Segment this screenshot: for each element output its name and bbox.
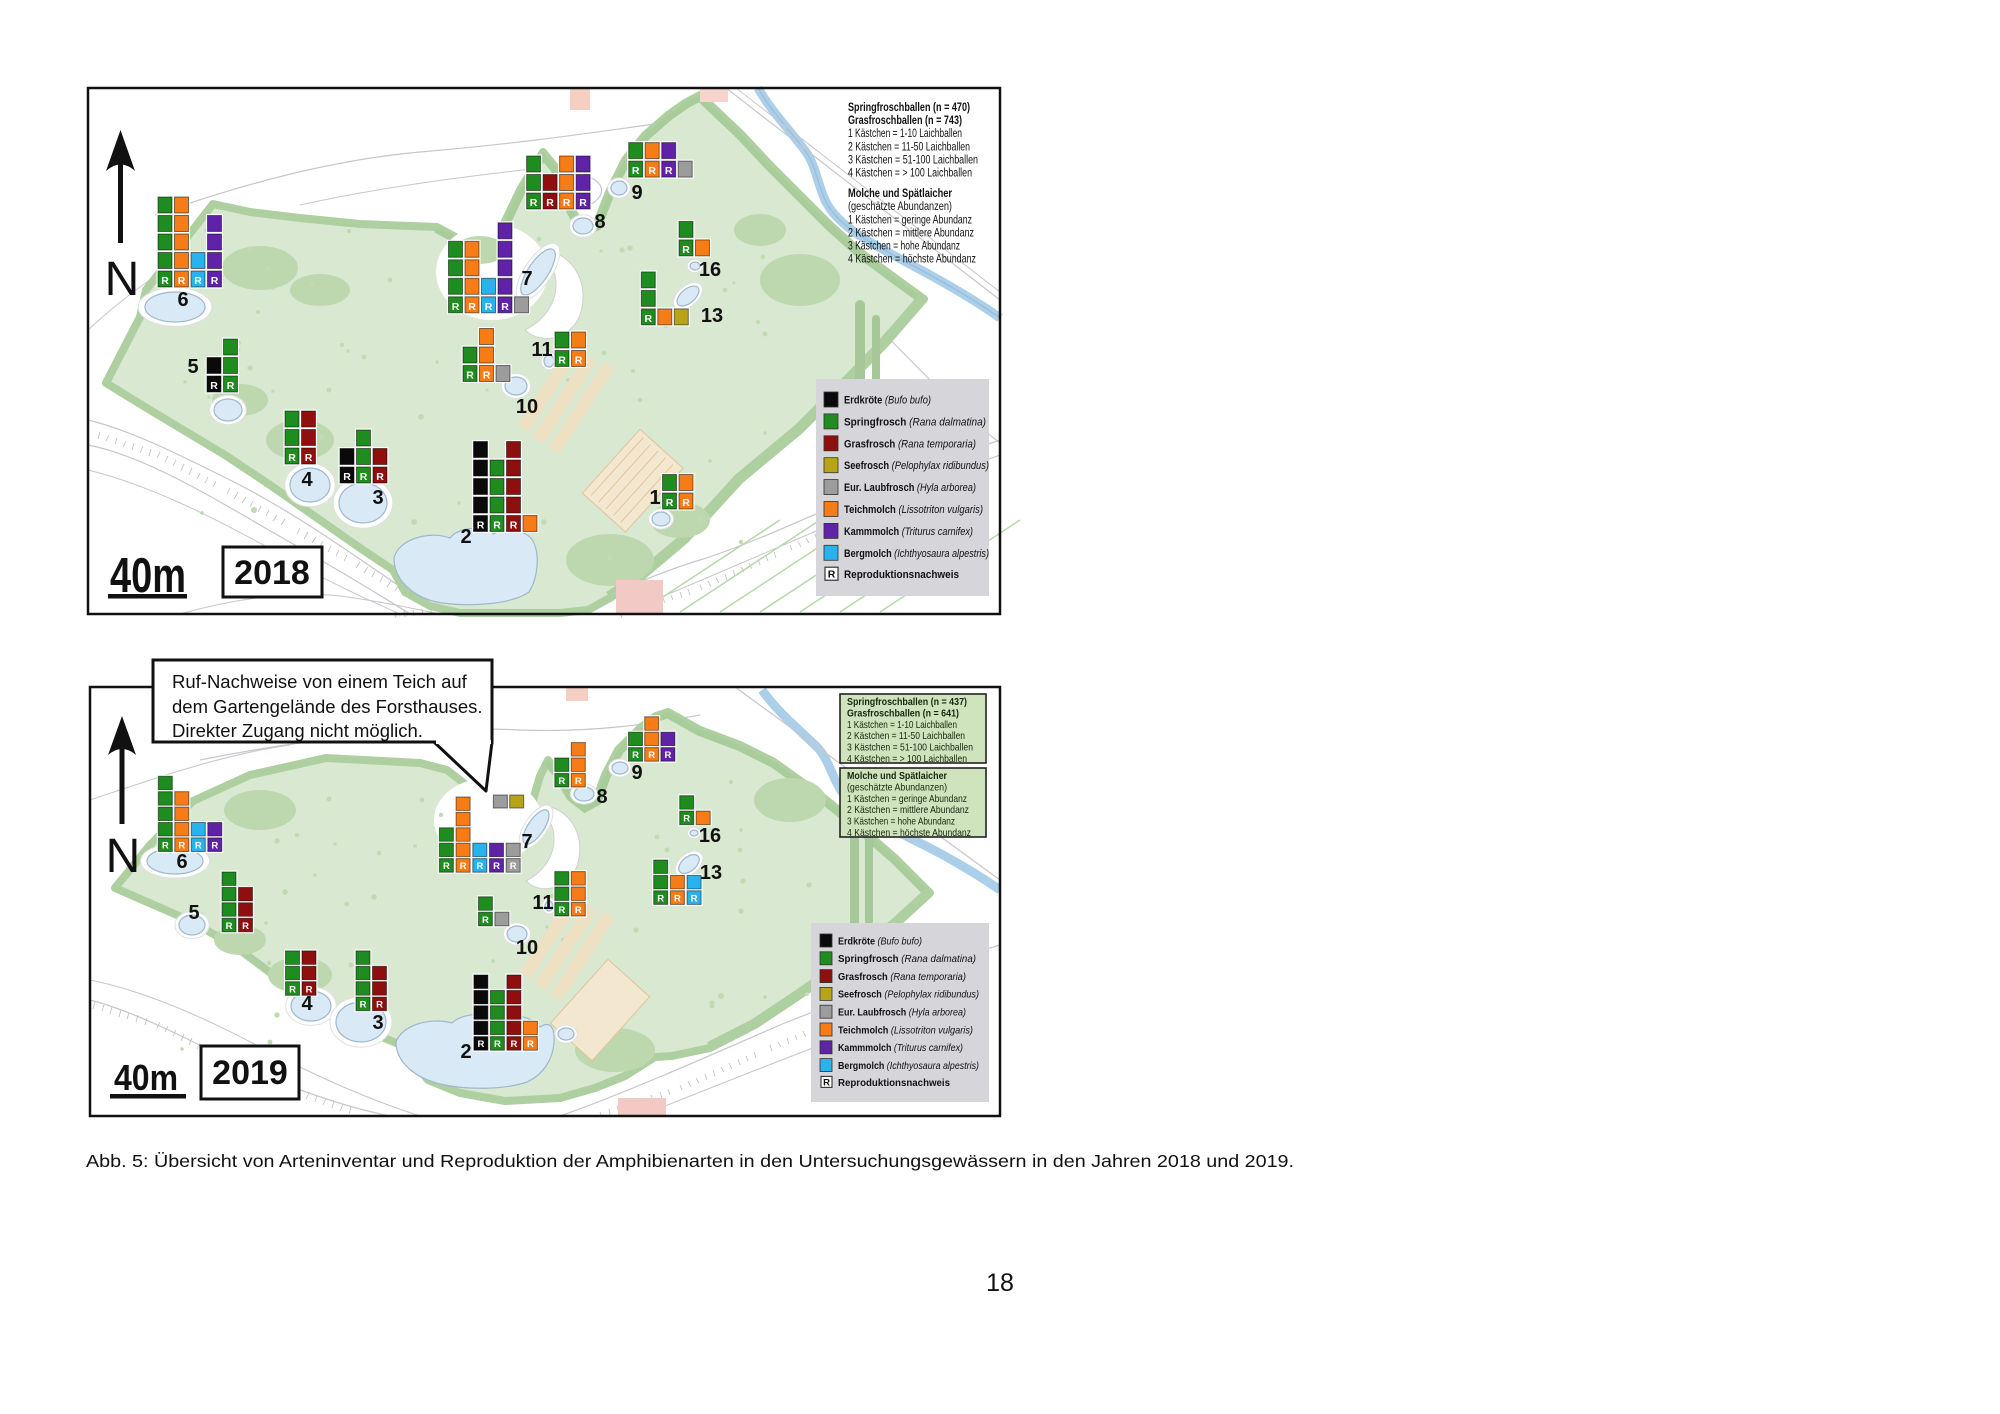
svg-text:Molche und Spätlaicher: Molche und Spätlaicher [847,771,947,782]
svg-text:R: R [162,841,169,852]
svg-text:R: R [443,861,450,872]
svg-text:R: R [823,1077,830,1088]
svg-text:Eur. Laubfrosch (Hyla arborea): Eur. Laubfrosch (Hyla arborea) [838,1008,966,1019]
svg-text:R: R [360,1000,367,1011]
svg-text:R: R [178,841,185,852]
svg-text:2 Kästchen = 11-50 Laichballen: 2 Kästchen = 11-50 Laichballen [847,731,965,742]
svg-text:R: R [510,1039,517,1050]
svg-text:R: R [648,750,655,761]
svg-text:4 Kästchen = höchste Abundanz: 4 Kästchen = höchste Abundanz [847,828,971,839]
svg-text:Reproduktionsnachweis: Reproduktionsnachweis [838,1078,950,1089]
svg-text:5: 5 [187,356,198,378]
svg-text:R: R [682,497,690,509]
svg-text:Ruf-Nachweise von einem Teich: Ruf-Nachweise von einem Teich auf [172,671,468,692]
svg-text:Springfrosch (Rana dalmatina): Springfrosch (Rana dalmatina) [844,416,986,428]
svg-text:R: R [645,313,653,325]
svg-text:R: R [376,471,384,483]
svg-text:R: R [476,861,483,872]
svg-text:Bergmolch (Ichthyosaura alpest: Bergmolch (Ichthyosaura alpestris) [844,548,989,560]
svg-text:16: 16 [699,259,721,281]
svg-text:3 Kästchen = 51-100 Laichballe: 3 Kästchen = 51-100 Laichballen [848,152,978,166]
svg-text:Seefrosch (Pelophylax ridibund: Seefrosch (Pelophylax ridibundus) [844,460,989,472]
svg-text:Erdkröte (Bufo bufo): Erdkröte (Bufo bufo) [844,395,931,407]
svg-text:R: R [194,275,202,287]
svg-text:Direkter Zugang nicht möglich.: Direkter Zugang nicht möglich. [172,720,423,741]
svg-text:R: R [493,520,501,532]
svg-text:R: R [211,275,219,287]
svg-text:R: R [558,776,565,787]
svg-text:R: R [460,861,467,872]
svg-text:16: 16 [699,825,721,847]
svg-text:R: R [477,1039,484,1050]
svg-text:R: R [527,1039,534,1050]
svg-text:R: R [510,861,517,872]
svg-text:11: 11 [532,892,553,914]
svg-text:R: R [485,301,493,313]
svg-text:R: R [510,520,518,532]
svg-text:1 Kästchen = geringe Abundanz: 1 Kästchen = geringe Abundanz [848,212,972,226]
svg-text:18: 18 [986,1269,1014,1297]
svg-text:R: R [632,165,640,177]
svg-text:N: N [105,253,140,306]
svg-text:R: R [632,750,639,761]
svg-text:1 Kästchen = 1-10 Laichballen: 1 Kästchen = 1-10 Laichballen [847,720,957,731]
svg-text:4: 4 [301,469,313,491]
svg-text:R: R [666,497,674,509]
svg-text:R: R [558,905,565,916]
svg-text:dem Gartengelände des Forsthau: dem Gartengelände des Forsthauses. [172,696,483,717]
svg-text:R: R [657,893,664,904]
svg-text:R: R [305,452,313,464]
svg-text:(geschätzte Abundanzen): (geschätzte Abundanzen) [847,782,947,793]
svg-text:R: R [227,380,235,392]
svg-text:Kammmolch (Triturus carnifex): Kammmolch (Triturus carnifex) [838,1043,963,1054]
svg-text:R: R [575,776,582,787]
svg-text:3 Kästchen = 51-100 Laichballe: 3 Kästchen = 51-100 Laichballen [847,743,973,754]
svg-text:2 Kästchen = mittlere Abundanz: 2 Kästchen = mittlere Abundanz [847,805,969,816]
svg-text:9: 9 [631,762,642,784]
svg-text:8: 8 [596,786,607,808]
svg-text:R: R [288,452,296,464]
svg-text:1 Kästchen = geringe Abundanz: 1 Kästchen = geringe Abundanz [847,794,967,805]
svg-text:Reproduktionsnachweis: Reproduktionsnachweis [844,569,959,581]
svg-text:3: 3 [372,1012,383,1034]
svg-text:13: 13 [701,305,723,327]
svg-text:3: 3 [372,487,383,509]
svg-text:R: R [674,893,681,904]
svg-text:13: 13 [700,862,722,884]
svg-text:R: R [468,301,476,313]
svg-text:Seefrosch (Pelophylax ridibund: Seefrosch (Pelophylax ridibundus) [838,990,979,1001]
svg-text:40m: 40m [114,1057,178,1098]
svg-text:Eur. Laubfrosch (Hyla arborea): Eur. Laubfrosch (Hyla arborea) [844,482,976,494]
svg-text:2 Kästchen = mittlere Abundanz: 2 Kästchen = mittlere Abundanz [848,225,974,239]
svg-text:2: 2 [460,1041,471,1063]
svg-text:R: R [648,165,656,177]
svg-text:Grasfrosch (Rana temporaria): Grasfrosch (Rana temporaria) [844,438,976,450]
svg-text:R: R [563,197,571,209]
svg-text:R: R [493,861,500,872]
svg-text:R: R [501,301,509,313]
svg-text:2018: 2018 [234,554,310,592]
svg-text:Abb. 5: Übersicht von Arteninv: Abb. 5: Übersicht von Arteninventar und … [86,1151,1294,1171]
svg-text:R: R [195,841,202,852]
svg-text:2 Kästchen = 11-50 Laichballen: 2 Kästchen = 11-50 Laichballen [848,139,970,153]
svg-text:R: R [242,921,249,932]
svg-text:Teichmolch (Lissotriton vulgar: Teichmolch (Lissotriton vulgaris) [844,504,983,516]
svg-text:R: R [360,471,368,483]
svg-text:9: 9 [631,182,642,204]
svg-text:R: R [575,355,583,367]
svg-text:R: R [376,1000,383,1011]
svg-text:R: R [494,1039,501,1050]
svg-text:R: R [210,380,218,392]
svg-text:2019: 2019 [212,1054,288,1092]
svg-text:7: 7 [521,831,532,853]
svg-text:4 Kästchen = > 100 Laichballen: 4 Kästchen = > 100 Laichballen [847,754,967,765]
svg-text:Grasfroschballen (n = 641): Grasfroschballen (n = 641) [847,708,959,719]
svg-text:Erdkröte (Bufo bufo): Erdkröte (Bufo bufo) [838,936,922,947]
svg-text:Bergmolch (Ichthyosaura alpest: Bergmolch (Ichthyosaura alpestris) [838,1061,979,1072]
svg-text:Springfroschballen (n = 437): Springfroschballen (n = 437) [847,697,967,708]
svg-text:3 Kästchen = hohe Abundanz: 3 Kästchen = hohe Abundanz [848,239,960,253]
svg-text:7: 7 [521,268,532,290]
svg-text:R: R [665,165,673,177]
svg-text:N: N [106,830,141,883]
svg-text:Kammmolch (Triturus carnifex): Kammmolch (Triturus carnifex) [844,526,973,538]
svg-text:R: R [343,471,351,483]
svg-text:11: 11 [531,339,552,361]
svg-text:R: R [226,921,233,932]
svg-text:R: R [579,197,587,209]
svg-text:10: 10 [516,396,538,418]
svg-text:Molche und Spätlaicher: Molche und Spätlaicher [848,186,952,200]
svg-text:R: R [691,893,698,904]
svg-text:R: R [452,301,460,313]
svg-text:R: R [828,569,836,581]
svg-text:R: R [682,244,690,256]
svg-text:R: R [546,197,554,209]
svg-text:Springfrosch (Rana dalmatina): Springfrosch (Rana dalmatina) [838,954,976,965]
svg-text:6: 6 [177,289,188,311]
svg-text:4 Kästchen = höchste Abundanz: 4 Kästchen = höchste Abundanz [848,252,976,266]
svg-text:R: R [211,841,218,852]
svg-text:2: 2 [460,526,471,548]
svg-text:R: R [664,750,671,761]
svg-text:1 Kästchen = 1-10 Laichballen: 1 Kästchen = 1-10 Laichballen [848,126,962,140]
svg-text:R: R [683,814,690,825]
svg-text:3 Kästchen = hohe Abundanz: 3 Kästchen = hohe Abundanz [847,817,955,828]
svg-text:R: R [178,275,186,287]
svg-text:R: R [530,197,538,209]
svg-text:1: 1 [649,487,660,509]
svg-text:R: R [482,915,489,926]
svg-text:R: R [477,520,485,532]
svg-text:Springfroschballen (n = 470): Springfroschballen (n = 470) [848,100,970,114]
svg-text:8: 8 [594,211,605,233]
svg-text:R: R [575,905,582,916]
svg-text:Grasfrosch (Rana temporaria): Grasfrosch (Rana temporaria) [838,972,966,983]
svg-text:(geschätzte Abundanzen): (geschätzte Abundanzen) [848,199,952,213]
svg-text:10: 10 [516,937,538,959]
svg-text:R: R [466,370,474,382]
svg-text:5: 5 [188,902,199,924]
svg-text:4 Kästchen = > 100 Laichballen: 4 Kästchen = > 100 Laichballen [848,166,972,180]
svg-text:R: R [558,355,566,367]
svg-text:Grasfroschballen (n = 743): Grasfroschballen (n = 743) [848,113,962,127]
svg-text:4: 4 [301,993,313,1015]
svg-text:R: R [483,370,491,382]
svg-text:R: R [161,275,169,287]
svg-text:R: R [289,984,296,995]
svg-text:6: 6 [176,851,187,873]
svg-text:Teichmolch (Lissotriton vulgar: Teichmolch (Lissotriton vulgaris) [838,1025,973,1036]
